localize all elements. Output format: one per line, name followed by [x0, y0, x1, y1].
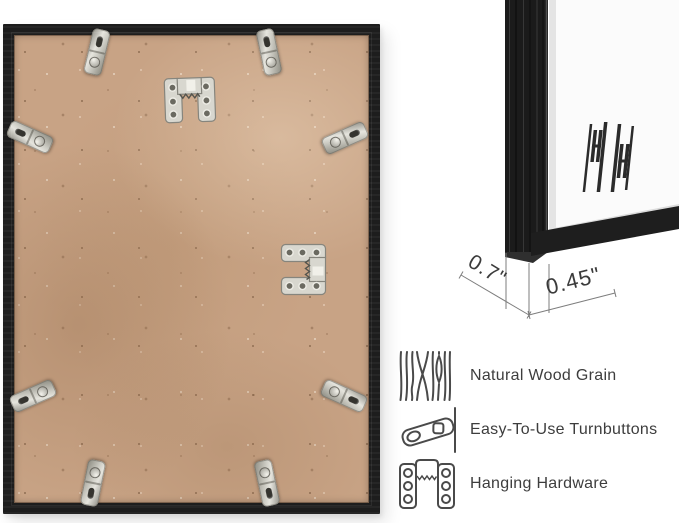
clip-seam	[341, 130, 349, 145]
clip-slot	[14, 128, 26, 138]
frame-back-photo	[3, 24, 380, 514]
clip-seam	[89, 49, 105, 55]
clip-slot	[263, 36, 271, 48]
frame-corner-diagram: 0.7" 0.45"	[430, 0, 679, 330]
clip-screw	[258, 466, 271, 479]
frame-corner-illustration: 0.7" 0.45"	[430, 0, 679, 330]
turnbutton-icon	[398, 406, 462, 454]
frame-rail	[505, 0, 548, 263]
feature-label: Hanging Hardware	[470, 475, 608, 493]
clip-slot	[95, 36, 103, 48]
sawtooth-hanger-landscape	[275, 243, 328, 297]
clip-slot	[265, 487, 273, 499]
clip-screw	[35, 384, 50, 399]
clip-screw	[265, 56, 278, 69]
feature-label: Natural Wood Grain	[470, 367, 617, 385]
wood-grain-icon	[398, 351, 462, 401]
clip-seam	[340, 388, 348, 403]
clip-screw	[88, 56, 101, 69]
clip-slot	[348, 129, 360, 139]
clip-screw	[328, 135, 343, 150]
features-list: Natural Wood Grain Easy-To-Use Turnbutto…	[398, 350, 674, 512]
dimension-line-face	[529, 293, 615, 315]
feature-label: Easy-To-Use Turnbuttons	[470, 421, 657, 439]
clip-slot	[17, 395, 29, 405]
clip-screw	[327, 384, 342, 399]
sawtooth-hanger-icon	[162, 75, 218, 125]
feature-row-wood-grain: Natural Wood Grain	[398, 350, 674, 402]
clip-screw	[32, 134, 47, 149]
depth-measurement-label: 0.7"	[464, 250, 511, 291]
clip-seam	[259, 480, 275, 485]
sawtooth-hanger-icon	[280, 243, 328, 297]
clip-screw	[89, 466, 102, 479]
sawtooth-hanger-portrait	[162, 75, 218, 130]
mat-board	[549, 0, 679, 229]
feature-row-turnbuttons: Easy-To-Use Turnbuttons	[398, 404, 674, 456]
hanging-hardware-icon	[398, 458, 462, 510]
face-measurement-label: 0.45"	[543, 262, 603, 300]
clip-slot	[347, 395, 359, 405]
clip-seam	[85, 480, 101, 485]
clip-slot	[87, 487, 95, 499]
feature-row-hanging-hardware: Hanging Hardware	[398, 458, 674, 510]
clip-seam	[261, 49, 277, 54]
